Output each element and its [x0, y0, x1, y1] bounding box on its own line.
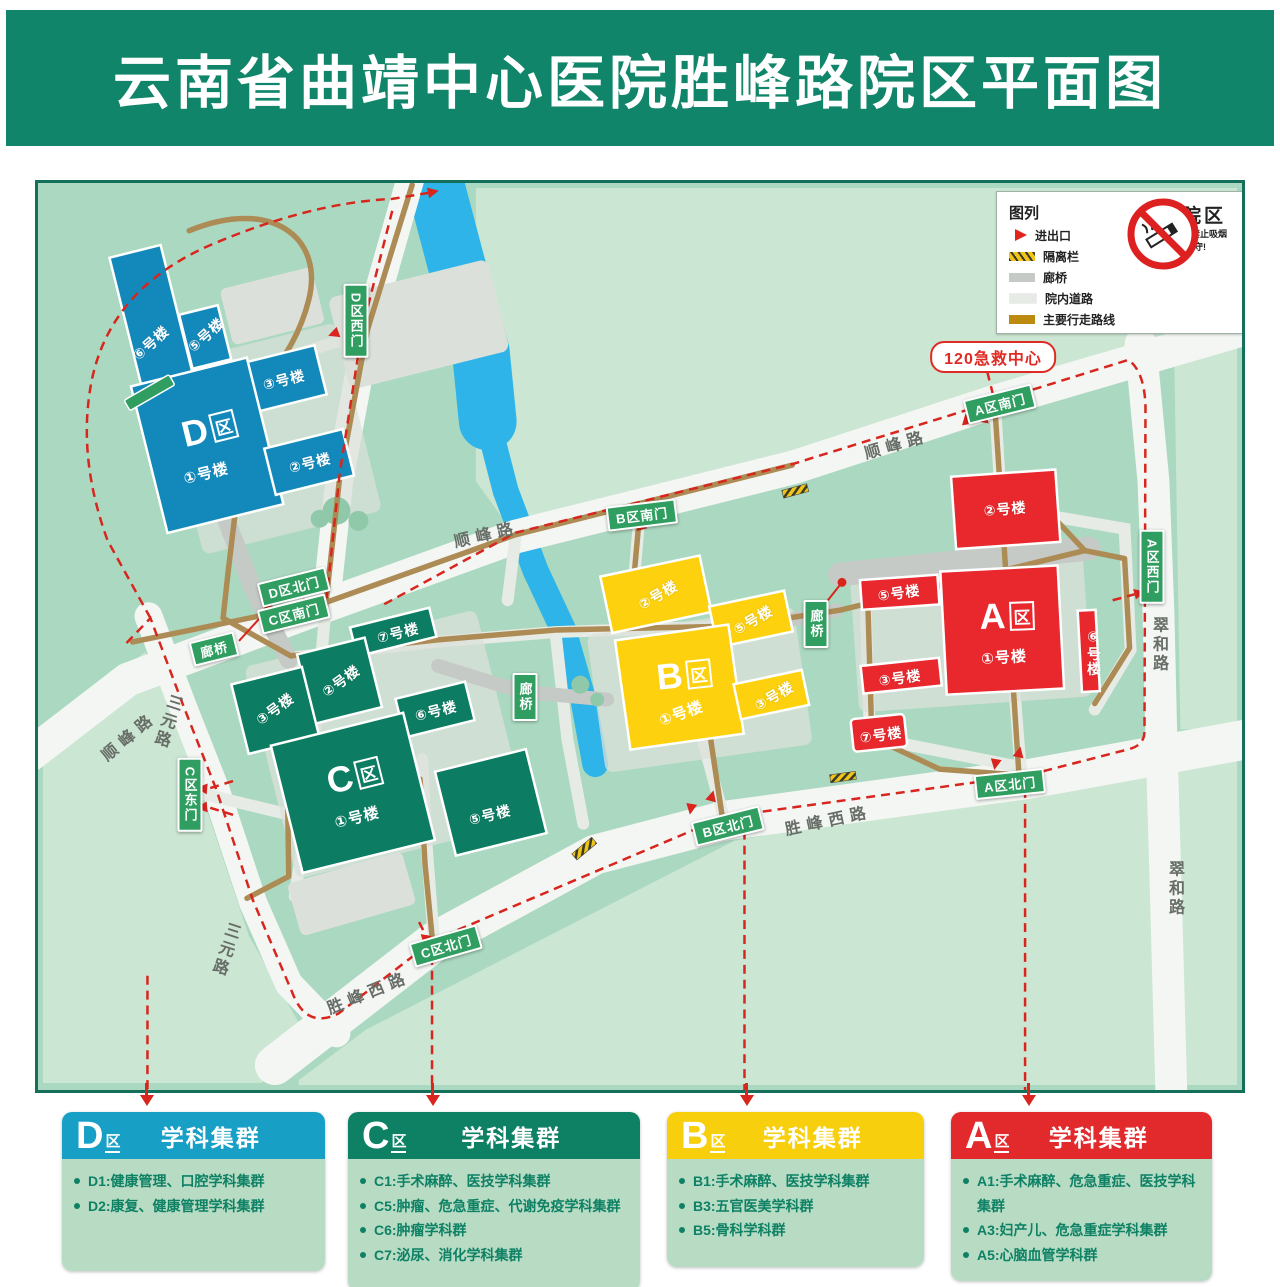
cluster-item: C1:手术麻醉、医技学科集群: [374, 1169, 628, 1194]
cluster-box-a: A区 学科集群 A1:手术麻醉、危急重症、医技学科集群 A3:妇产儿、危急重症学…: [951, 1112, 1212, 1281]
legend-item-route: 主要行走路线: [1009, 311, 1115, 327]
corridor-swatch-icon: [1009, 273, 1035, 282]
title-bar: 云南省曲靖中心医院胜峰路院区平面图: [6, 10, 1274, 146]
route-swatch-icon: [1009, 315, 1035, 324]
gate-a-west: A区西门: [1140, 530, 1165, 604]
zone-label-b: B区: [655, 654, 713, 696]
no-smoking-icon: [1126, 197, 1200, 271]
connector-d-arrow: [140, 1095, 154, 1106]
no-smoking-sign: 无烟院区 院内所有区域禁止吸烟 请自觉遵守!: [1126, 197, 1238, 253]
road-label-cuihe-2: 翠和路: [1162, 861, 1186, 918]
connector-c-arrow: [426, 1095, 440, 1106]
entrance-arrow-icon: [1015, 229, 1027, 241]
cluster-box-c-header: C区 学科集群: [348, 1112, 640, 1159]
cluster-item: C5:肿瘤、危急重症、代谢免疫学科集群: [374, 1194, 628, 1219]
cluster-item: D1:健康管理、口腔学科集群: [88, 1169, 313, 1194]
connector-b: [745, 1083, 748, 1095]
road-swatch-icon: [1009, 293, 1037, 304]
cluster-box-c-items: C1:手术麻醉、医技学科集群 C5:肿瘤、危急重症、代谢免疫学科集群 C6:肿瘤…: [348, 1159, 640, 1287]
cluster-box-a-items: A1:手术麻醉、危急重症、医技学科集群 A3:妇产儿、危急重症学科集群 A5:心…: [951, 1159, 1212, 1281]
cluster-item: B3:五官医美学科群: [693, 1194, 912, 1219]
cluster-box-c: C区 学科集群 C1:手术麻醉、医技学科集群 C5:肿瘤、危急重症、代谢免疫学科…: [348, 1112, 640, 1287]
legend-item-road: 院内道路: [1009, 290, 1093, 306]
campus-map: D区西门 D区北门 C区南门 C区东门 C区北门 B区南门 B区北门 A区南门 …: [35, 180, 1245, 1093]
cluster-box-b-header: B区 学科集群: [667, 1112, 924, 1159]
road-label-cuihe-1: 翠和路: [1146, 617, 1170, 674]
cluster-item: C7:泌尿、消化学科集群: [374, 1243, 628, 1268]
cluster-item: B1:手术麻醉、医技学科集群: [693, 1169, 912, 1194]
cluster-item: C6:肿瘤学科群: [374, 1218, 628, 1243]
connector-a-arrow: [1022, 1095, 1036, 1106]
cluster-item: A5:心脑血管学科群: [977, 1243, 1200, 1268]
page-title: 云南省曲靖中心医院胜峰路院区平面图: [6, 10, 1274, 146]
connector-d: [145, 1083, 148, 1095]
connector-b-arrow: [740, 1095, 754, 1106]
connector-c: [431, 1083, 434, 1095]
legend-item-corridor: 廊桥: [1009, 269, 1067, 285]
cluster-box-b-items: B1:手术麻醉、医技学科集群 B3:五官医美学科群 B5:骨科学科群: [667, 1159, 924, 1267]
building-label-a2: ②号楼: [983, 497, 1027, 521]
fence-swatch-icon: [1009, 252, 1035, 261]
cluster-box-b: B区 学科集群 B1:手术麻醉、医技学科集群 B3:五官医美学科群 B5:骨科学…: [667, 1112, 924, 1267]
cluster-box-d: D区 学科集群 D1:健康管理、口腔学科集群 D2:康复、健康管理学科集群: [62, 1112, 325, 1271]
cluster-item: D2:康复、健康管理学科集群: [88, 1194, 313, 1219]
bridge-sign-3: 廊桥: [804, 600, 829, 648]
building-label-a6: ⑥号楼: [1084, 630, 1104, 677]
zone-label-a: A区: [979, 597, 1035, 635]
gate-c-east: C区东门: [178, 758, 203, 832]
legend-item-entrance: 进出口: [1009, 227, 1071, 243]
building-label-a1: ①号楼: [980, 645, 1027, 669]
cluster-box-d-header: D区 学科集群: [62, 1112, 325, 1159]
cluster-item: A1:手术麻醉、危急重症、医技学科集群: [977, 1169, 1200, 1218]
legend-item-fence: 隔离栏: [1009, 248, 1079, 264]
gate-d-west: D区西门: [344, 284, 369, 358]
legend-title: 图列: [1009, 202, 1039, 223]
bridge-sign-2: 廊桥: [513, 673, 538, 721]
emergency-center-label: 120急救中心: [930, 341, 1056, 373]
cluster-item: B5:骨科学科群: [693, 1218, 912, 1243]
cluster-item: A3:妇产儿、危急重症学科集群: [977, 1218, 1200, 1243]
cluster-box-a-header: A区 学科集群: [951, 1112, 1212, 1159]
cluster-box-d-items: D1:健康管理、口腔学科集群 D2:康复、健康管理学科集群: [62, 1159, 325, 1271]
connector-a: [1027, 1083, 1030, 1095]
